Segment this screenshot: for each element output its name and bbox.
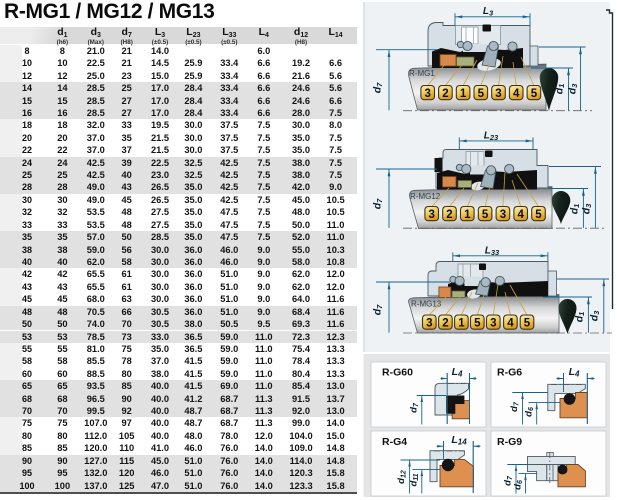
svg-text:2: 2 [442,88,448,100]
svg-text:R-MG12: R-MG12 [410,192,441,201]
svg-text:4: 4 [507,317,514,329]
svg-text:2: 2 [446,209,452,221]
svg-text:5: 5 [524,317,531,329]
svg-text:R-MG1: R-MG1 [409,69,435,78]
svg-text:1: 1 [464,209,471,221]
svg-text:L3: L3 [483,6,494,18]
svg-text:3: 3 [490,317,496,329]
svg-text:4: 4 [513,88,520,100]
svg-text:5: 5 [535,209,542,221]
svg-text:5: 5 [478,88,485,100]
svg-text:R-MG13: R-MG13 [411,300,442,309]
svg-text:3: 3 [428,209,434,221]
svg-text:L33: L33 [485,246,500,258]
svg-text:1: 1 [458,317,465,329]
svg-text:5: 5 [482,209,489,221]
svg-text:3: 3 [495,88,501,100]
svg-text:5: 5 [474,317,481,329]
svg-text:2: 2 [442,317,448,329]
svg-text:3: 3 [424,88,430,100]
svg-text:R-G6: R-G6 [497,367,522,379]
svg-text:3: 3 [426,317,432,329]
svg-text:1: 1 [460,88,467,100]
svg-text:5: 5 [531,88,538,100]
svg-text:R-G4: R-G4 [382,436,407,448]
svg-text:3: 3 [500,209,506,221]
svg-text:R-G9: R-G9 [497,436,522,448]
svg-text:R-G60: R-G60 [382,367,413,379]
svg-text:4: 4 [517,209,524,221]
svg-text:L23: L23 [484,131,499,143]
